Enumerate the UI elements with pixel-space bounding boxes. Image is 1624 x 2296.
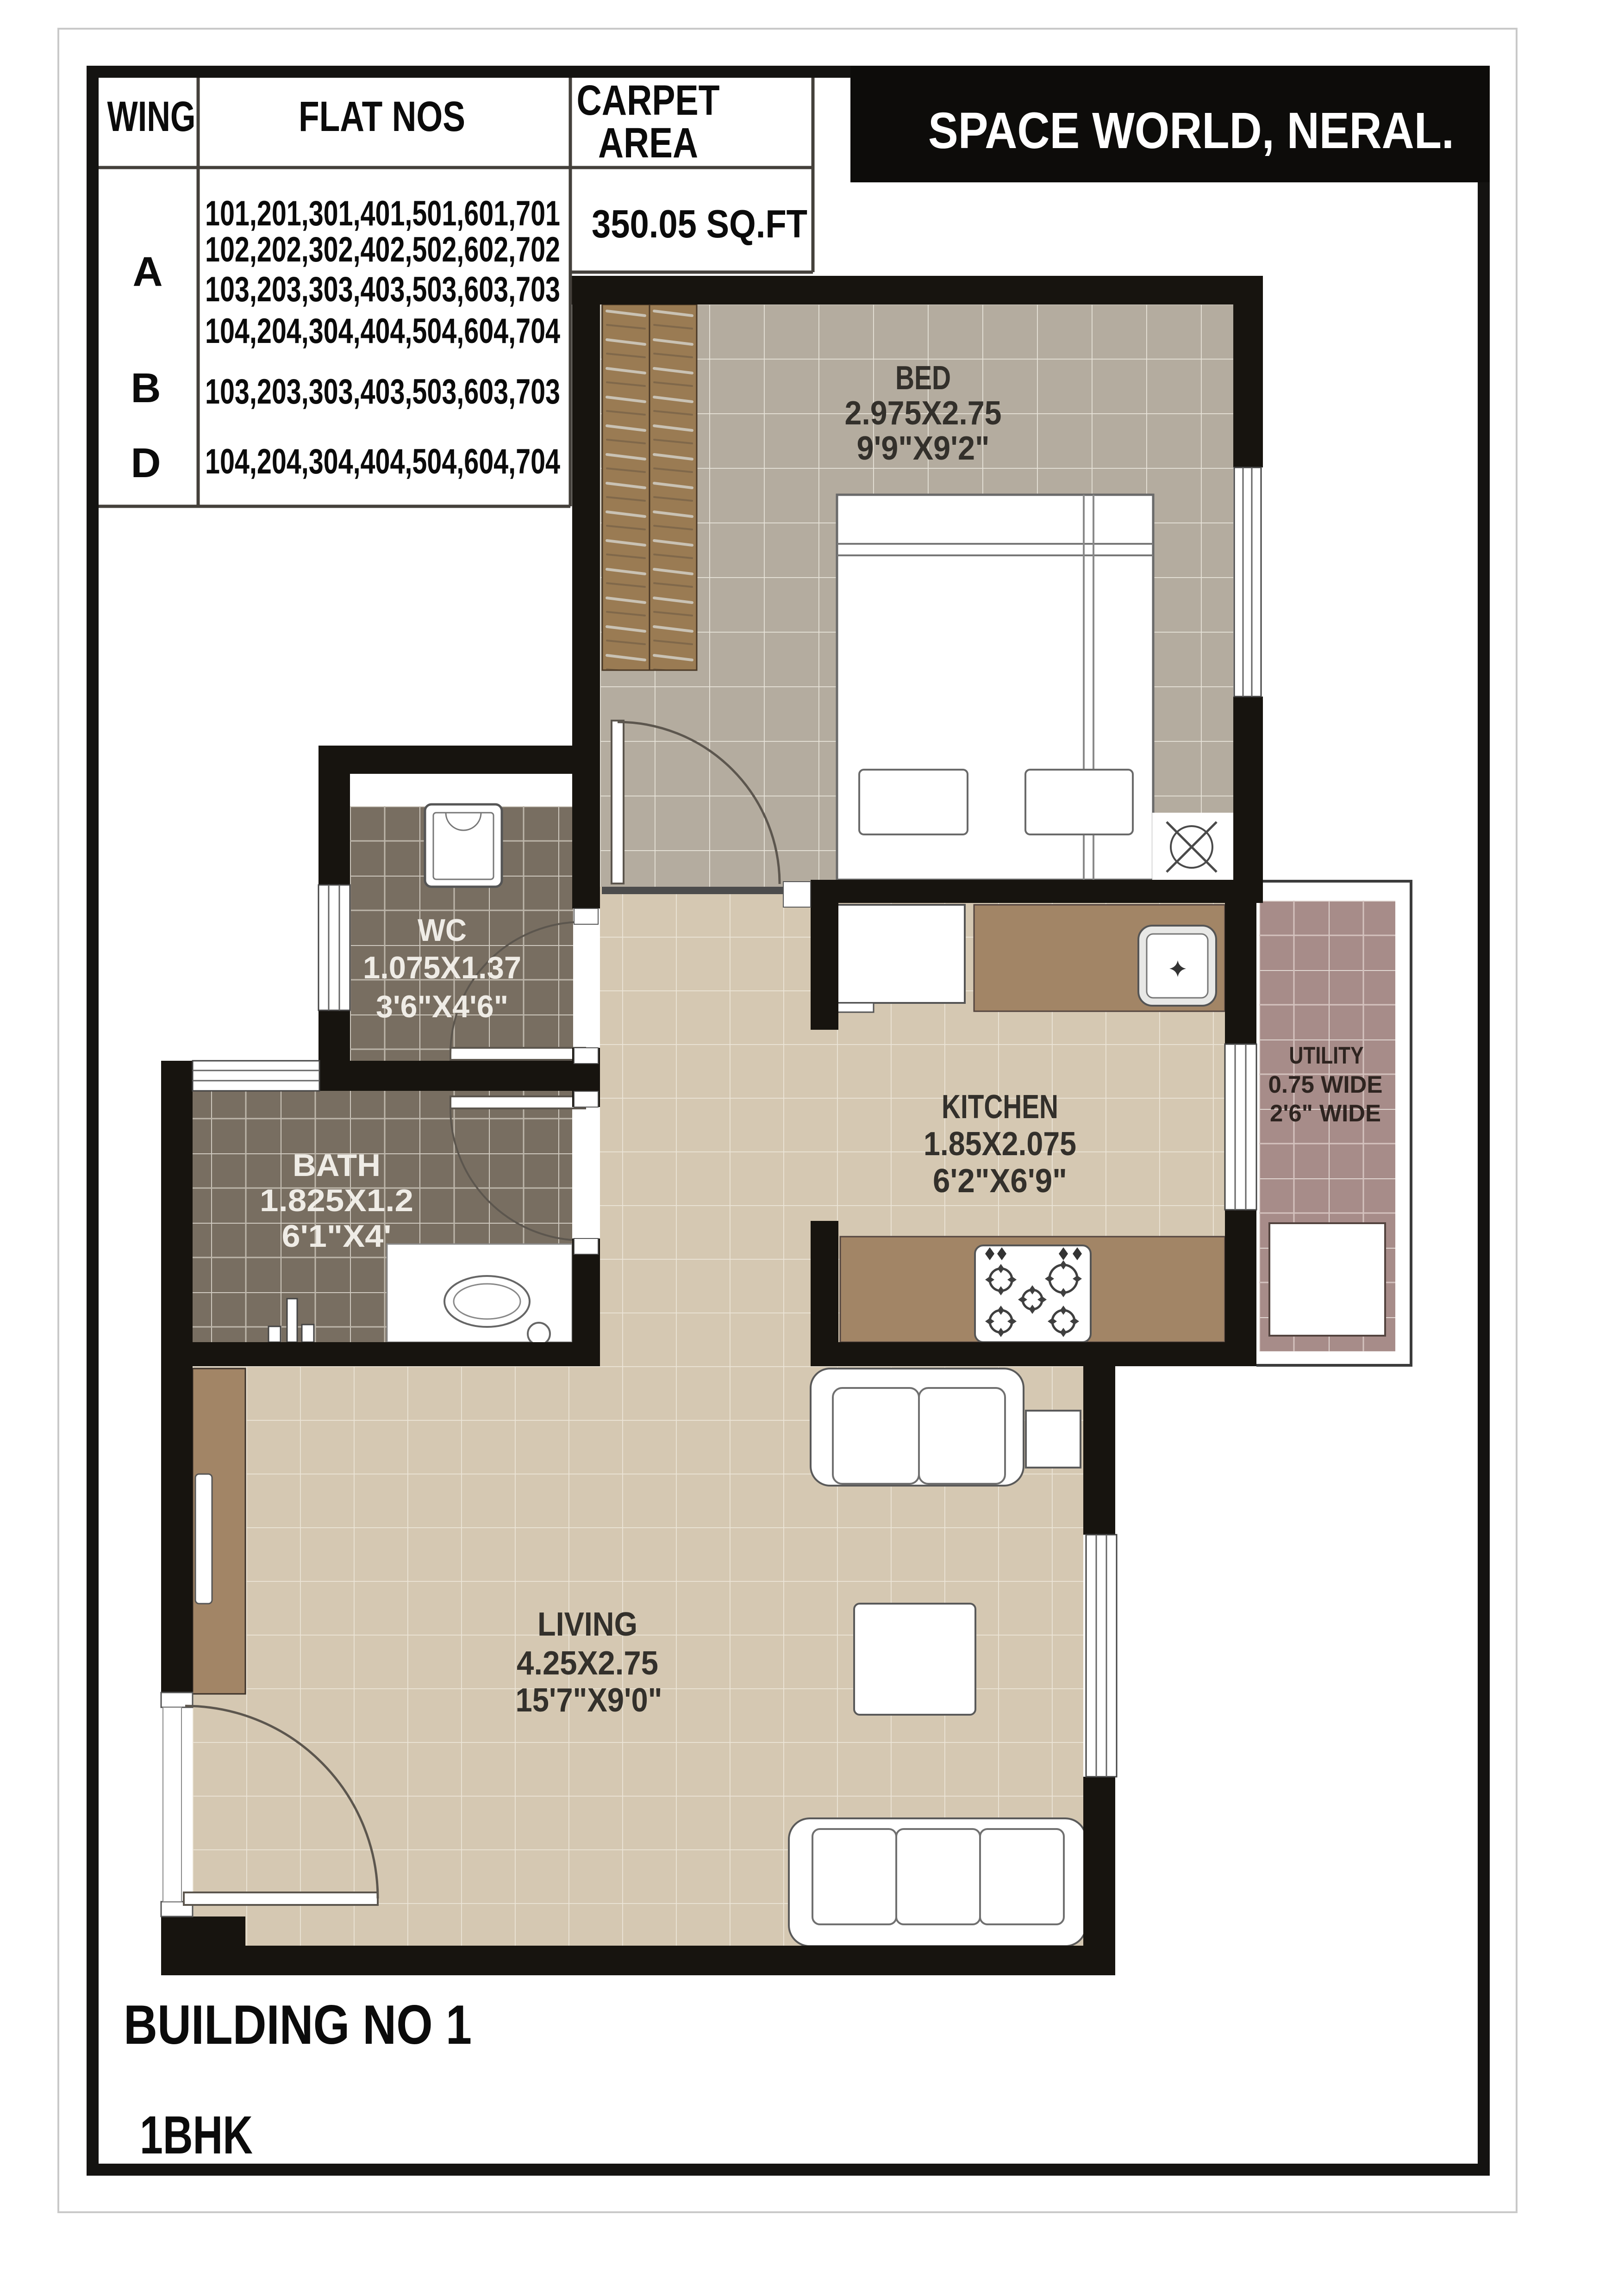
svg-text:UTILITY: UTILITY [1289, 1042, 1364, 1069]
svg-text:1.075X1.37: 1.075X1.37 [363, 950, 521, 985]
svg-text:KITCHEN: KITCHEN [942, 1089, 1058, 1126]
svg-text:LIVING: LIVING [537, 1606, 637, 1643]
svg-text:15'7"X9'0": 15'7"X9'0" [516, 1682, 662, 1719]
svg-text:A: A [133, 249, 163, 295]
svg-text:350.05 SQ.FT: 350.05 SQ.FT [592, 202, 807, 246]
svg-text:2'6" WIDE: 2'6" WIDE [1270, 1100, 1381, 1127]
svg-text:B: B [131, 365, 161, 411]
svg-text:102,202,302,402,502,602,702: 102,202,302,402,502,602,702 [205, 230, 560, 269]
svg-text:D: D [131, 440, 161, 486]
svg-text:CARPET: CARPET [577, 77, 720, 124]
svg-text:BED: BED [895, 360, 951, 397]
svg-text:4.25X2.75: 4.25X2.75 [517, 1645, 658, 1682]
svg-text:2.975X2.75: 2.975X2.75 [845, 395, 1002, 432]
svg-text:1BHK: 1BHK [140, 2105, 253, 2165]
svg-text:1.825X1.2: 1.825X1.2 [260, 1183, 413, 1218]
svg-text:9'9"X9'2": 9'9"X9'2" [857, 430, 990, 467]
svg-text:FLAT NOS: FLAT NOS [299, 93, 465, 140]
svg-text:103,203,303,403,503,603,703: 103,203,303,403,503,603,703 [205, 270, 560, 309]
svg-text:BUILDING NO 1: BUILDING NO 1 [124, 1994, 472, 2056]
svg-text:104,204,304,404,504,604,704: 104,204,304,404,504,604,704 [205, 442, 560, 481]
svg-text:BATH: BATH [293, 1148, 381, 1183]
svg-text:3'6"X4'6": 3'6"X4'6" [376, 989, 508, 1024]
svg-text:6'2"X6'9": 6'2"X6'9" [933, 1163, 1067, 1200]
svg-text:WING: WING [107, 93, 196, 140]
svg-text:AREA: AREA [598, 119, 698, 167]
svg-text:0.75 WIDE: 0.75 WIDE [1268, 1071, 1383, 1098]
svg-text:6'1"X4': 6'1"X4' [282, 1219, 392, 1254]
svg-text:WC: WC [418, 913, 467, 948]
svg-text:SPACE WORLD, NERAL.: SPACE WORLD, NERAL. [928, 102, 1454, 159]
svg-text:1.85X2.075: 1.85X2.075 [924, 1126, 1076, 1163]
svg-text:104,204,304,404,504,604,704: 104,204,304,404,504,604,704 [205, 311, 560, 351]
svg-text:101,201,301,401,501,601,701: 101,201,301,401,501,601,701 [205, 194, 560, 233]
svg-text:103,203,303,403,503,603,703: 103,203,303,403,503,603,703 [205, 372, 560, 411]
